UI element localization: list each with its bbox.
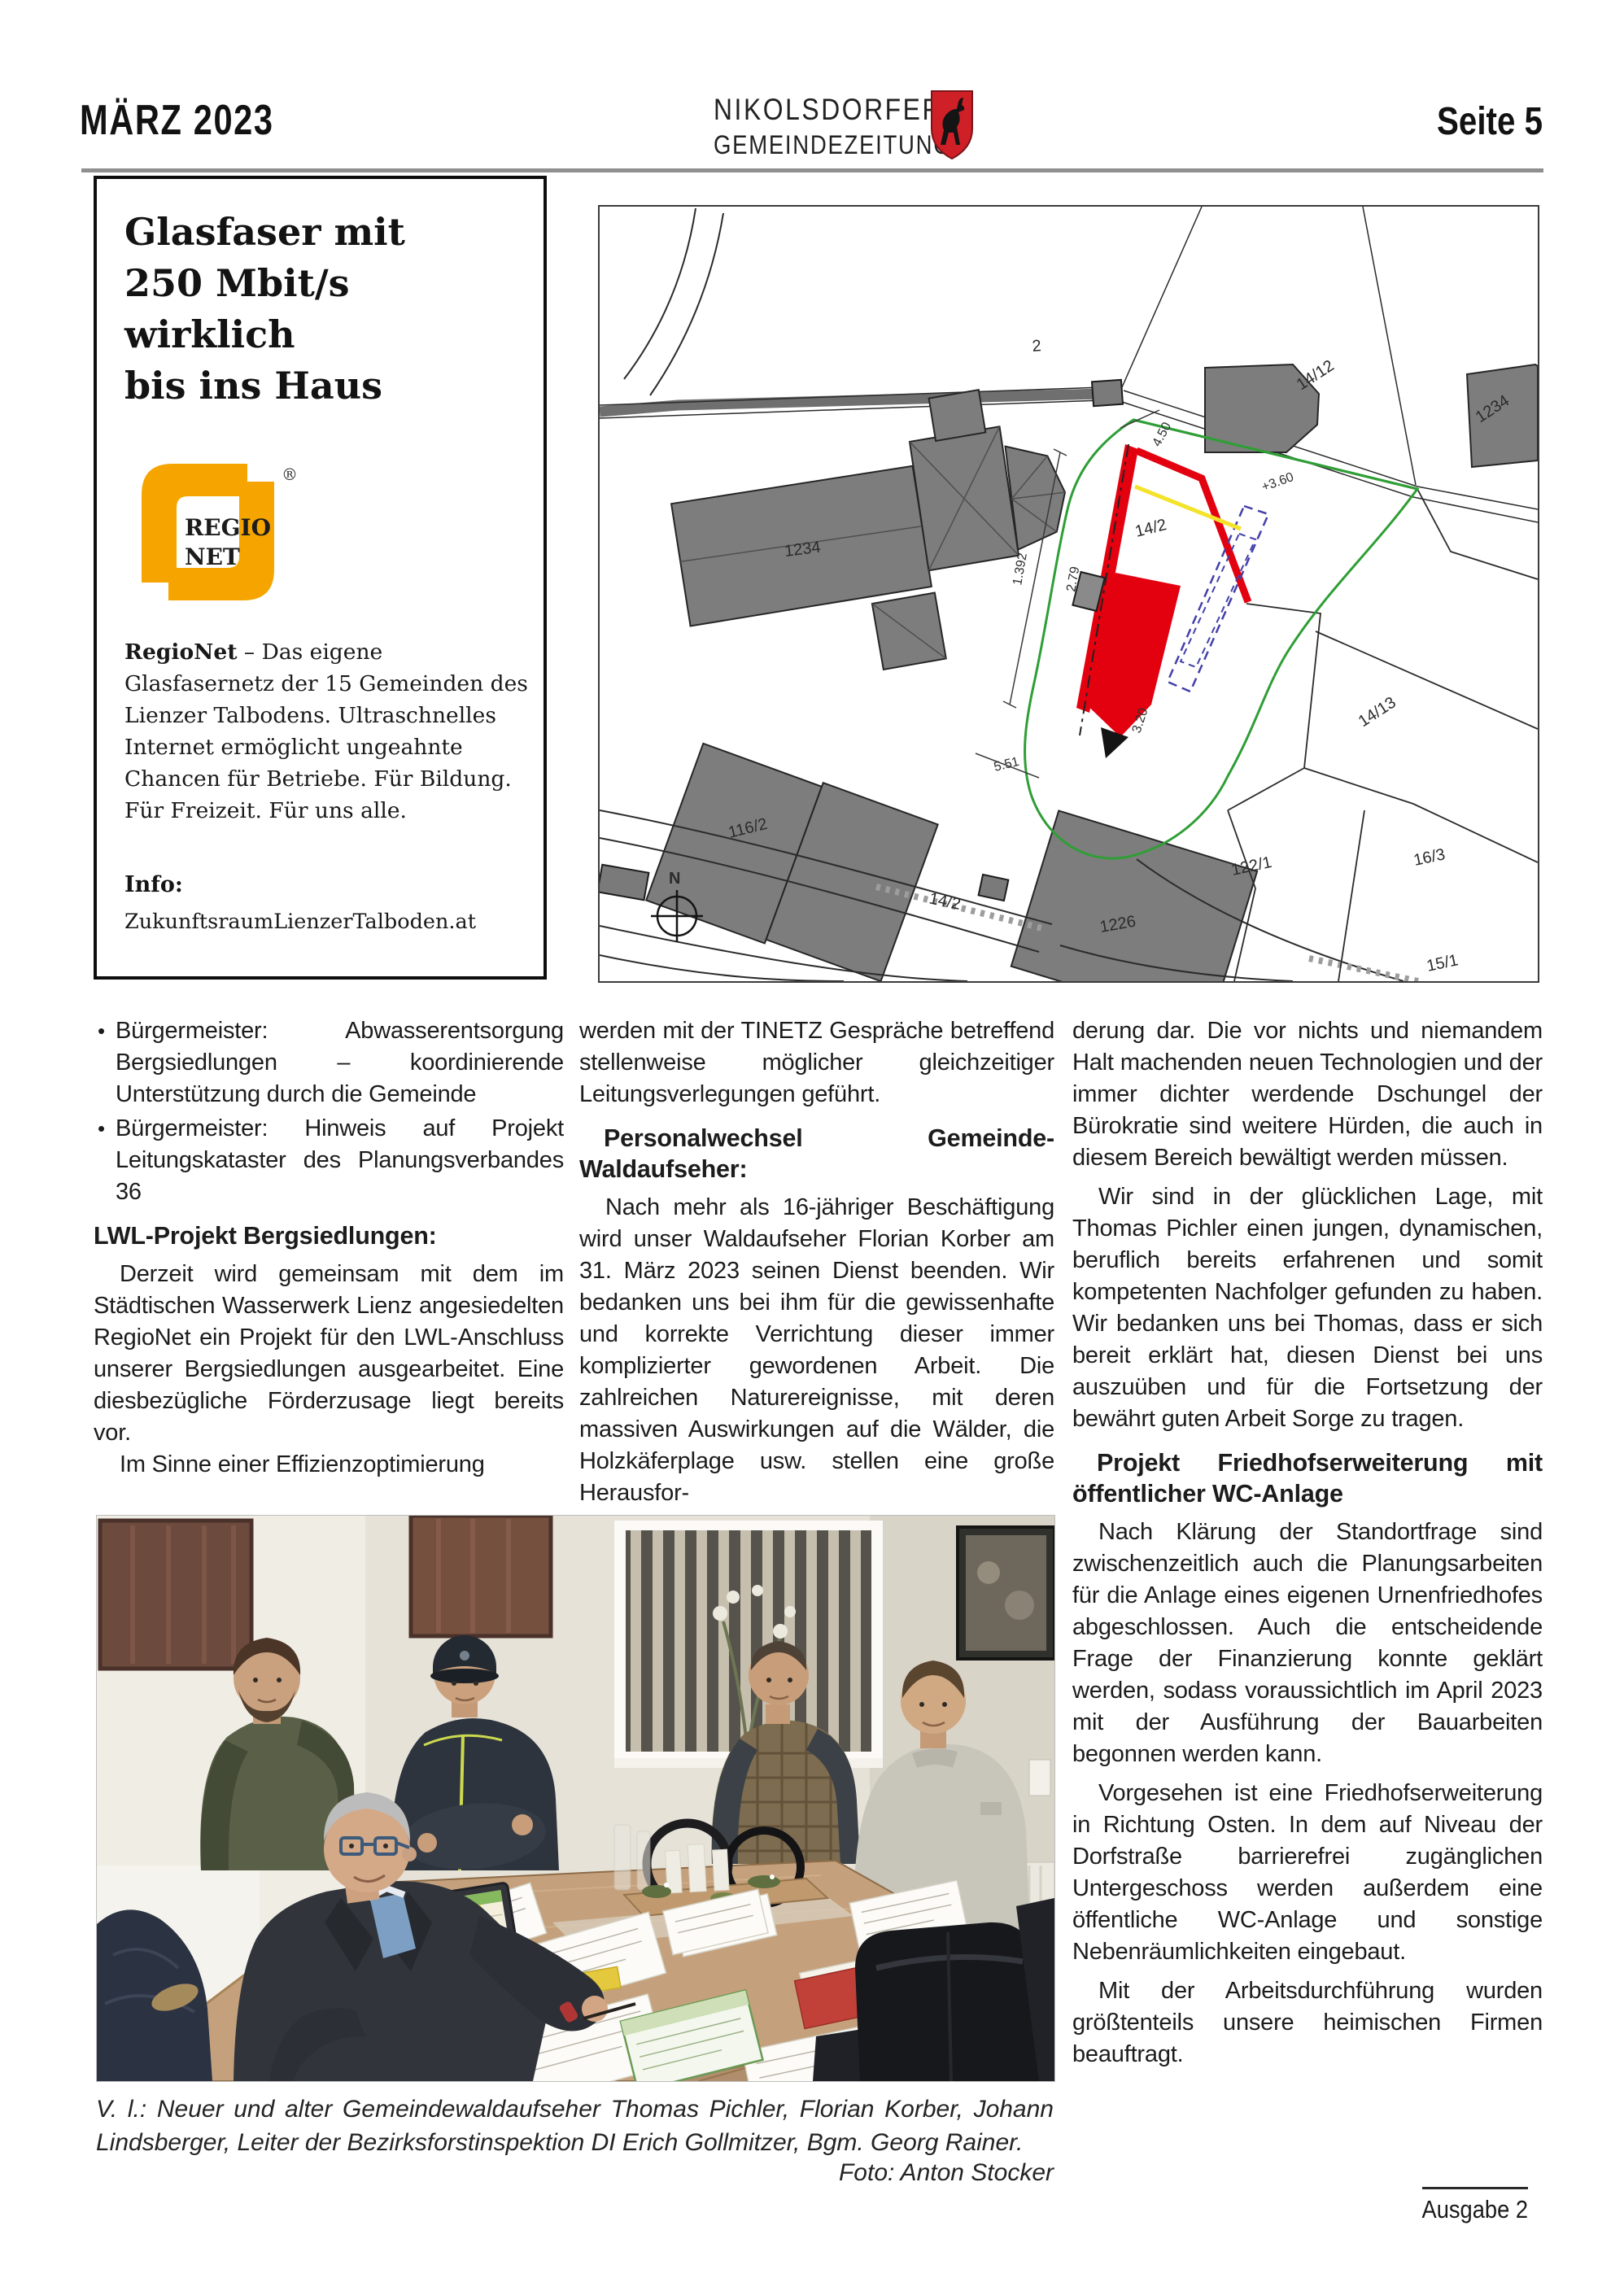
ad-info-url: ZukunftsraumLienzerTalboden.at xyxy=(124,910,476,934)
map-parcel-lines xyxy=(1228,489,1538,981)
map-building-south xyxy=(1011,810,1257,981)
map-utility-box-top xyxy=(1092,380,1123,406)
map-church-building xyxy=(662,381,1084,692)
meeting-photo xyxy=(96,1515,1055,2082)
lwl-paragraph-1: Derzeit wird gemeinsam mit dem im Städti… xyxy=(94,1259,564,1449)
issue-date: MÄRZ 2023 xyxy=(80,96,274,145)
map-dim-551: 5.51 xyxy=(993,755,1020,775)
coat-of-arms-icon xyxy=(930,89,974,161)
map-label-parcel-2: 2 xyxy=(1032,337,1042,356)
personal-paragraph-1: Nach mehr als 16-jähriger Beschäftigung … xyxy=(579,1192,1054,1509)
footer-rule xyxy=(1422,2187,1528,2189)
ad-body-text: RegioNet – Das eigene Glasfasernetz der … xyxy=(124,636,530,827)
issue-label: Ausgabe 2 xyxy=(1328,2195,1528,2224)
window xyxy=(614,1521,883,1768)
ad-body-rest: – Das eigene Glasfasernetz der 15 Gemein… xyxy=(124,639,528,823)
regionet-ad: Glasfaser mit 250 Mbit/s wirklich bis in… xyxy=(94,176,547,980)
article-column-2: werden mit der TINETZ Gespräche betreffe… xyxy=(579,1015,1054,1509)
friedhof-paragraph-1: Nach Klärung der Standortfrage sind zwis… xyxy=(1072,1516,1543,1770)
ad-headline-line1: Glasfaser mit xyxy=(124,207,405,258)
light-switch xyxy=(1029,1760,1050,1796)
heading-friedhofserweiterung: Projekt Friedhofserweiterung mit öffentl… xyxy=(1072,1447,1543,1509)
photo-credit: Foto: Anton Stocker xyxy=(96,2159,1054,2187)
masthead: NIKOLSDORFER GEMEINDEZEITUNG xyxy=(714,94,923,158)
friedhof-paragraph-3: Mit der Arbeitsdurchführung wurden größt… xyxy=(1072,1975,1543,2071)
article-column-3: derung dar. Die vor nichts und niemandem… xyxy=(1072,1015,1543,2071)
heading-lwl-projekt: LWL-Projekt Bergsiedlungen: xyxy=(94,1220,564,1251)
masthead-line2: GEMEINDEZEITUNG xyxy=(714,132,923,158)
logo-text-net: NET xyxy=(185,543,240,570)
ad-headline-line4: bis ins Haus xyxy=(124,360,405,412)
map-label-parcel-14-13: 14/13 xyxy=(1356,693,1399,731)
registered-mark: ® xyxy=(282,465,298,484)
cadastral-map: 1.392 4.50 +3.60 2.79 3.20 5.51 N 2 14/1… xyxy=(598,205,1539,983)
heading-personalwechsel: Personalwechsel Gemeinde-Waldaufseher: xyxy=(579,1123,1054,1185)
page-number: Seite 5 xyxy=(1347,99,1543,144)
masthead-line1: NIKOLSDORFER xyxy=(714,94,923,124)
map-utility-box-road xyxy=(979,875,1009,901)
agenda-bullet-1: Bürgermeister: Abwasserentsorgung Bergsi… xyxy=(94,1015,564,1111)
photo-caption: V. l.: Neuer und alter Gemeindewaldaufse… xyxy=(96,2093,1054,2159)
logo-text-regio: REGIO xyxy=(185,514,271,541)
ad-info-label: Info: xyxy=(124,872,183,897)
map-blue-plan-outline xyxy=(1168,506,1268,692)
map-label-road-14-2: 14/2 xyxy=(928,889,963,914)
personal-paragraph-3: Wir sind in der glücklichen Lage, mit Th… xyxy=(1072,1181,1543,1435)
map-label-parcel-122-1: 122/1 xyxy=(1229,853,1273,879)
agenda-bullet-2: Bürgermeister: Hinweis auf Projekt Leitu… xyxy=(94,1113,564,1208)
lwl-paragraph-3: werden mit der TINETZ Gespräche betreffe… xyxy=(579,1015,1054,1111)
header-rule xyxy=(81,168,1543,172)
map-green-boundary xyxy=(1025,420,1417,858)
map-label-parcel-15-1: 15/1 xyxy=(1425,951,1460,975)
ad-headline-line3: wirklich xyxy=(124,309,405,360)
lwl-paragraph-2: Im Sinne einer Effizienzoptimierung xyxy=(94,1449,564,1481)
map-utility-box-left xyxy=(600,865,648,901)
cadastral-map-drawing: 1.392 4.50 +3.60 2.79 3.20 5.51 N 2 14/1… xyxy=(600,207,1538,981)
map-road-edges xyxy=(600,207,1538,522)
meeting-photo-illustration xyxy=(97,1516,1054,2081)
map-label-parcel-14-2: 14/2 xyxy=(1133,516,1168,541)
personal-paragraph-2: derung dar. Die vor nichts und niemandem… xyxy=(1072,1015,1543,1174)
map-roads-upper xyxy=(624,208,723,395)
article-column-1: Bürgermeister: Abwasserentsorgung Bergsi… xyxy=(94,1015,564,1481)
map-label-north: N xyxy=(669,870,680,888)
ad-headline-line2: 250 Mbit/s xyxy=(124,258,405,309)
wall-picture-left xyxy=(100,1521,251,1669)
regionet-logo-icon: REGIO NET ® xyxy=(121,446,299,621)
map-label-parcel-16-3: 16/3 xyxy=(1412,845,1447,870)
wall-picture-right xyxy=(958,1527,1054,1659)
ad-headline: Glasfaser mit 250 Mbit/s wirklich bis in… xyxy=(124,207,405,412)
wall-picture-center xyxy=(411,1516,551,1636)
ad-body-lead: RegioNet xyxy=(124,639,237,665)
map-label-parcel-14-12: 14/12 xyxy=(1294,356,1338,394)
friedhof-paragraph-2: Vorgesehen ist eine Friedhofserweiterung… xyxy=(1072,1778,1543,1968)
map-dim-360: +3.60 xyxy=(1260,470,1296,495)
